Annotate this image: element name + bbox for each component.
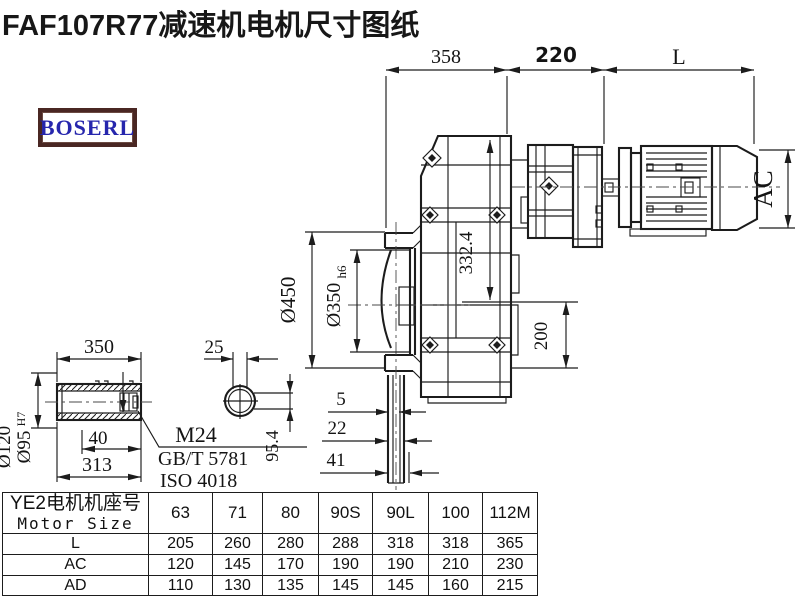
table-cell: 110 [149,576,213,596]
table-cell: 145 [319,576,373,596]
header-cn: YE2电机机座号 [3,493,148,515]
dim-200: 200 [531,322,552,351]
dim-25: 25 [205,337,224,358]
table-cell: 190 [373,555,429,576]
dim-dia450: Ø450 [276,277,300,324]
dim-dia120: Ø120 [0,426,15,468]
table-cell: 120 [149,555,213,576]
dim-41: 41 [327,450,346,471]
size-col-100: 100 [429,493,483,534]
motor-ac-dim: AC [748,150,795,228]
table-cell: 215 [483,576,538,596]
table-cell: 170 [263,555,319,576]
adapter-plug-icon [540,177,558,195]
table-cell: 210 [429,555,483,576]
table-row-AD: AD 110 130 135 145 145 160 215 [3,576,538,596]
dim-220: 220 [535,43,577,67]
table-cell: 260 [213,534,263,555]
table-cell: 205 [149,534,213,555]
callout-iso4018: ISO 4018 [160,470,237,492]
size-col-63: 63 [149,493,213,534]
hollow-shaft-detail: 350 40 313 Ø120 Ø95 H7 [0,336,307,492]
header-en: Motor Size [3,515,148,533]
table-cell: 288 [319,534,373,555]
dim-dia95-tolerance: H7 [14,412,28,427]
dim-350: 350 [84,336,114,358]
table-header-row: YE2电机机座号 Motor Size 63 71 80 90S 90L 100… [3,493,538,534]
dim-AC: AC [748,170,778,208]
table-cell: 318 [429,534,483,555]
oil-plug-icons [422,207,505,353]
dim-L: L [672,44,685,69]
table-cell: 135 [263,576,319,596]
size-col-90L: 90L [373,493,429,534]
motor-size-table: YE2电机机座号 Motor Size 63 71 80 90S 90L 100… [2,492,538,596]
table-cell: 365 [483,534,538,555]
dim-332-4: 332.4 [456,231,477,274]
drawing-page: FAF107R77减速机电机尺寸图纸 BOSERL 358 220 L [0,0,800,596]
dim-dia350: Ø350 [323,283,345,327]
callout-gbt5781: GB/T 5781 [158,448,248,470]
output-flange [348,222,470,490]
dim-dia350-tolerance: h6 [334,265,349,279]
size-col-80: 80 [263,493,319,534]
row-label-AD: AD [3,576,149,596]
table-header-motor-size: YE2电机机座号 Motor Size [3,493,149,534]
table-row-L: L 205 260 280 288 318 318 365 [3,534,538,555]
dim-95-4: 95.4 [262,430,282,462]
table-cell: 145 [213,555,263,576]
dim-5: 5 [336,389,346,410]
size-col-90S: 90S [319,493,373,534]
table-cell: 130 [213,576,263,596]
row-label-L: L [3,534,149,555]
table-cell: 145 [373,576,429,596]
dim-40: 40 [89,428,108,449]
dim-22: 22 [328,418,347,439]
height-dims: 332.4 200 [456,140,578,368]
table-cell: 230 [483,555,538,576]
table-cell: 280 [263,534,319,555]
dim-dia95: Ø95 [14,431,35,464]
offset-dims: 5 22 41 [320,389,439,476]
dim-358: 358 [431,46,461,68]
callout-m24: M24 [175,422,217,447]
size-col-112M: 112M [483,493,538,534]
row-label-AC: AC [3,555,149,576]
table-cell: 318 [373,534,429,555]
dim-313: 313 [82,454,112,476]
table-cell: 190 [319,555,373,576]
input-adapter [511,145,619,247]
table-cell: 160 [429,576,483,596]
table-row-AC: AC 120 145 170 190 190 210 230 [3,555,538,576]
size-col-71: 71 [213,493,263,534]
